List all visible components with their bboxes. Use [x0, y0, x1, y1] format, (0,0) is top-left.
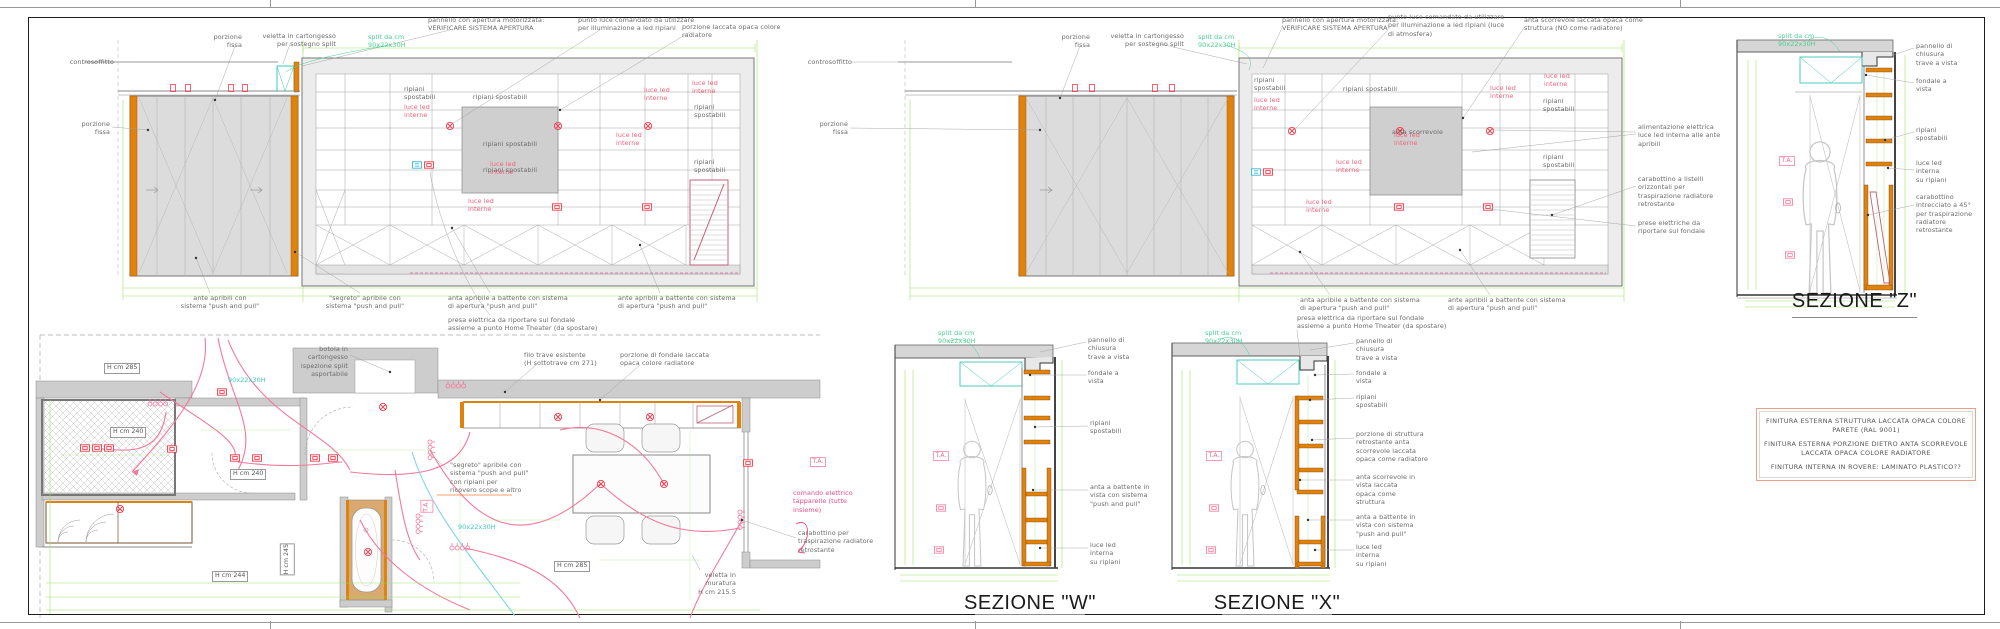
label-anta-scorrevole-top: anta scorrevole laccata opaca come strut… — [1524, 16, 1643, 33]
label-fondale-vista: fondale a vista — [1916, 77, 1947, 94]
wardrobe — [42, 502, 192, 547]
label-ta: T.A. — [1779, 156, 1795, 166]
label-controsoffitto: controsoffitto — [790, 58, 852, 66]
label-luce-led: luce led interne — [1306, 198, 1332, 215]
label-alimentazione: alimentazione elettrica luce led interna… — [1638, 123, 1720, 148]
label-split: split da cm 90x22x30H — [938, 329, 976, 346]
label-pannello-chiusura: pannello di chiusura trave a vista — [1916, 42, 1957, 67]
label-ripiani: ripiani spostabili — [694, 103, 725, 120]
label-luce-led: luce led interne — [1490, 84, 1516, 101]
label-presa: presa elettrica da riportare sul fondale… — [1297, 314, 1446, 331]
label-fondale-vista: fondale a vista — [1356, 369, 1387, 386]
label-porzione-fissa: porzione fissa — [1048, 33, 1090, 50]
label-botola: botola in cartongesso ispezione split as… — [300, 345, 348, 378]
label-ripiani: ripiani spostabili — [480, 166, 540, 174]
label-split: split da cm 90x22x30H — [1778, 32, 1816, 49]
label-ripiani: ripiani spostabili — [460, 93, 540, 101]
label-ripiani: ripiani spostabili — [1916, 126, 1947, 143]
label-split: split da cm 90x22x30H — [1205, 329, 1243, 346]
label-ante-battente: ante apribili a battente con sistema di … — [618, 294, 736, 311]
radiator-grille — [690, 180, 728, 265]
label-ripiani: ripiani spostabili — [470, 140, 550, 148]
label-luce-led: luce led interne — [468, 197, 494, 214]
label-luce-led: luce led interne — [1544, 72, 1570, 89]
label-segreto: "segreto" apribile con sistema "push and… — [315, 294, 415, 311]
label-veletta: veletta in cartongesso per sostegno spli… — [248, 32, 336, 49]
label-anta-battente: anta apribile a battente con sistema di … — [448, 294, 568, 311]
label-punto-luce-atmosfera: punto luce comandato da utilizzare per i… — [1388, 13, 1504, 38]
label-porzione-struttura: porzione di struttura retrostante anta s… — [1356, 430, 1428, 463]
label-pannello-chiusura: pannello di chiusura trave a vista — [1088, 336, 1129, 361]
section-x — [1172, 330, 1354, 581]
label-luce-led-ripiani: luce led interna su ripiani — [1916, 159, 1946, 184]
title-underline — [975, 614, 1085, 615]
label-h240: H cm 240 — [230, 469, 266, 480]
finish-notes-box: FINITURA ESTERNA STRUTTURA LACCATA OPACA… — [1756, 408, 1976, 481]
label-split-dim: 90x22x30H — [458, 523, 496, 531]
label-luce-led: luce led interne — [616, 131, 642, 148]
label-ta: T.A. — [1206, 451, 1222, 461]
label-segreto-plan: "segreto" apribile con sistema "push and… — [450, 461, 528, 494]
label-ripiani: ripiani spostabili — [1254, 76, 1285, 93]
label-ante-battente: ante apribili a battente con sistema di … — [1448, 296, 1566, 313]
window-right — [744, 432, 748, 552]
label-luce-led-ripiani: luce led interna su ripiani — [1090, 541, 1120, 566]
label-prese-fondale: prese elettriche da riportare sul fondal… — [1638, 219, 1705, 236]
label-ta: T.A. — [933, 451, 949, 461]
label-punto-luce: punto luce comandato da utilizzare per i… — [578, 16, 694, 33]
radiator-grille — [1530, 180, 1575, 258]
label-luce-led: luce led interne — [404, 103, 430, 120]
shelf-section — [1295, 365, 1325, 568]
label-pannello-chiusura: pannello di chiusura trave a vista — [1356, 337, 1397, 362]
label-fondale-vista: fondale a vista — [1088, 369, 1119, 386]
drawing-canvas — [0, 0, 2000, 629]
notes-line: FINITURA INTERNA IN ROVERE: LAMINATO PLA… — [1757, 463, 1975, 472]
label-porzione-fissa: porzione fissa — [62, 120, 110, 137]
label-comando-tapparelle: comando elettrico tapparelle (tutte insi… — [793, 489, 853, 514]
dining-table — [573, 424, 710, 544]
label-pannello-motorizzato: pannello con apertura motorizzata: VERIF… — [428, 16, 544, 33]
label-controsoffitto: controsoffitto — [52, 58, 114, 66]
label-luce-led-ripiani: luce led interna su ripiani — [1356, 543, 1386, 568]
section-w-title: SEZIONE "W" — [925, 592, 1135, 615]
label-luce-led: luce led interne — [1254, 96, 1280, 113]
label-h245: H cm 245 — [280, 543, 295, 575]
label-ripiani: ripiani spostabili — [1356, 393, 1387, 410]
notes-line: FINITURA ESTERNA PORZIONE DIETRO ANTA SC… — [1757, 440, 1975, 458]
label-split: split da cm 90x22x30H — [1198, 33, 1236, 50]
label-ta: T.A. — [810, 457, 826, 467]
label-h244: H cm 244 — [212, 571, 248, 582]
human-silhouette — [958, 441, 986, 566]
label-carabottino-plan: carabottino per traspirazione radiatore … — [798, 529, 873, 554]
drawing-sheet: controsoffitto porzione fissa porzione f… — [0, 0, 2000, 629]
label-veletta-muratura: veletta in muratura H cm 215.5 — [686, 571, 736, 596]
notes-line: FINITURA ESTERNA STRUTTURA LACCATA OPACA… — [1757, 417, 1975, 435]
human-silhouette — [1231, 441, 1259, 566]
label-split-dim: 90x22x30H — [228, 376, 266, 384]
label-ripiani: ripiani spostabili — [1330, 85, 1410, 93]
label-h285: H cm 285 — [554, 561, 590, 572]
label-carabottino-listelli: carabottino a listelli orizzontali per t… — [1638, 175, 1713, 208]
label-anta-scorrevole-vista: anta scorrevole in vista laccata opaca c… — [1356, 473, 1415, 506]
dimension-lines — [900, 360, 1062, 581]
shelving-unit — [1239, 58, 1622, 286]
label-luce-led: luce led interne — [1336, 158, 1362, 175]
title-underline — [1222, 614, 1332, 615]
label-filo-trave: filo trave esistente (H sottotrave cm 27… — [524, 351, 597, 368]
label-ta: T.A. — [420, 500, 433, 513]
label-anta-battente: anta apribile a battente con sistema di … — [1300, 296, 1420, 313]
section-w — [895, 339, 1088, 581]
label-anta-scorrevole: anta scorrevole — [1375, 128, 1460, 136]
label-porzione-fondale: porzione di fondale laccata opaca colore… — [620, 351, 709, 368]
label-porzione-fissa: porzione fissa — [200, 33, 242, 50]
label-ripiani: ripiani spostabili — [1543, 153, 1574, 170]
label-ripiani: ripiani spostabili — [404, 85, 435, 102]
label-h285: H cm 285 — [104, 363, 140, 374]
label-ripiani: ripiani spostabili — [1090, 419, 1121, 436]
label-luce-led: luce led interne — [692, 79, 718, 96]
section-x-title: SEZIONE "X" — [1172, 592, 1382, 615]
shelf-section — [1864, 66, 1893, 293]
label-porzione-laccata: porzione laccata opaca colore radiatore — [682, 23, 781, 40]
label-ripiani: ripiani spostabili — [1543, 97, 1574, 114]
section-z — [1737, 37, 1914, 307]
label-luce-led: luce led interne — [644, 86, 670, 103]
label-split: split da cm 90x22x30H — [368, 33, 406, 50]
label-anta-battente-vista: anta a battente in vista con sistema "pu… — [1090, 483, 1149, 508]
sliding-panels — [1019, 96, 1234, 276]
label-pannello-motorizzato: pannello con apertura motorizzata: VERIF… — [1282, 16, 1398, 33]
label-h240: H cm 240 — [110, 427, 146, 438]
section-z-title: SEZIONE "Z" — [1762, 290, 1947, 313]
elevation-a — [85, 30, 757, 315]
title-underline — [1792, 317, 1917, 318]
label-veletta: veletta in cartongesso per sostegno spli… — [1096, 32, 1184, 49]
shelf-section — [1022, 368, 1051, 566]
human-silhouette — [1803, 142, 1837, 293]
label-ante-apribili: ante apribili con sistema "push and pull… — [170, 294, 270, 311]
label-ripiani: ripiani spostabili — [694, 158, 725, 175]
sliding-panels — [130, 96, 298, 276]
label-presa: presa elettrica da riportare sul fondale… — [448, 316, 597, 333]
label-anta-battente-vista: anta a battente in vista con sistema "pu… — [1356, 513, 1415, 538]
label-porzione-fissa: porzione fissa — [800, 120, 848, 137]
elevation-b — [850, 28, 1636, 302]
label-carabottino-45: carabottino intrecciato a 45° per traspi… — [1916, 193, 1972, 235]
